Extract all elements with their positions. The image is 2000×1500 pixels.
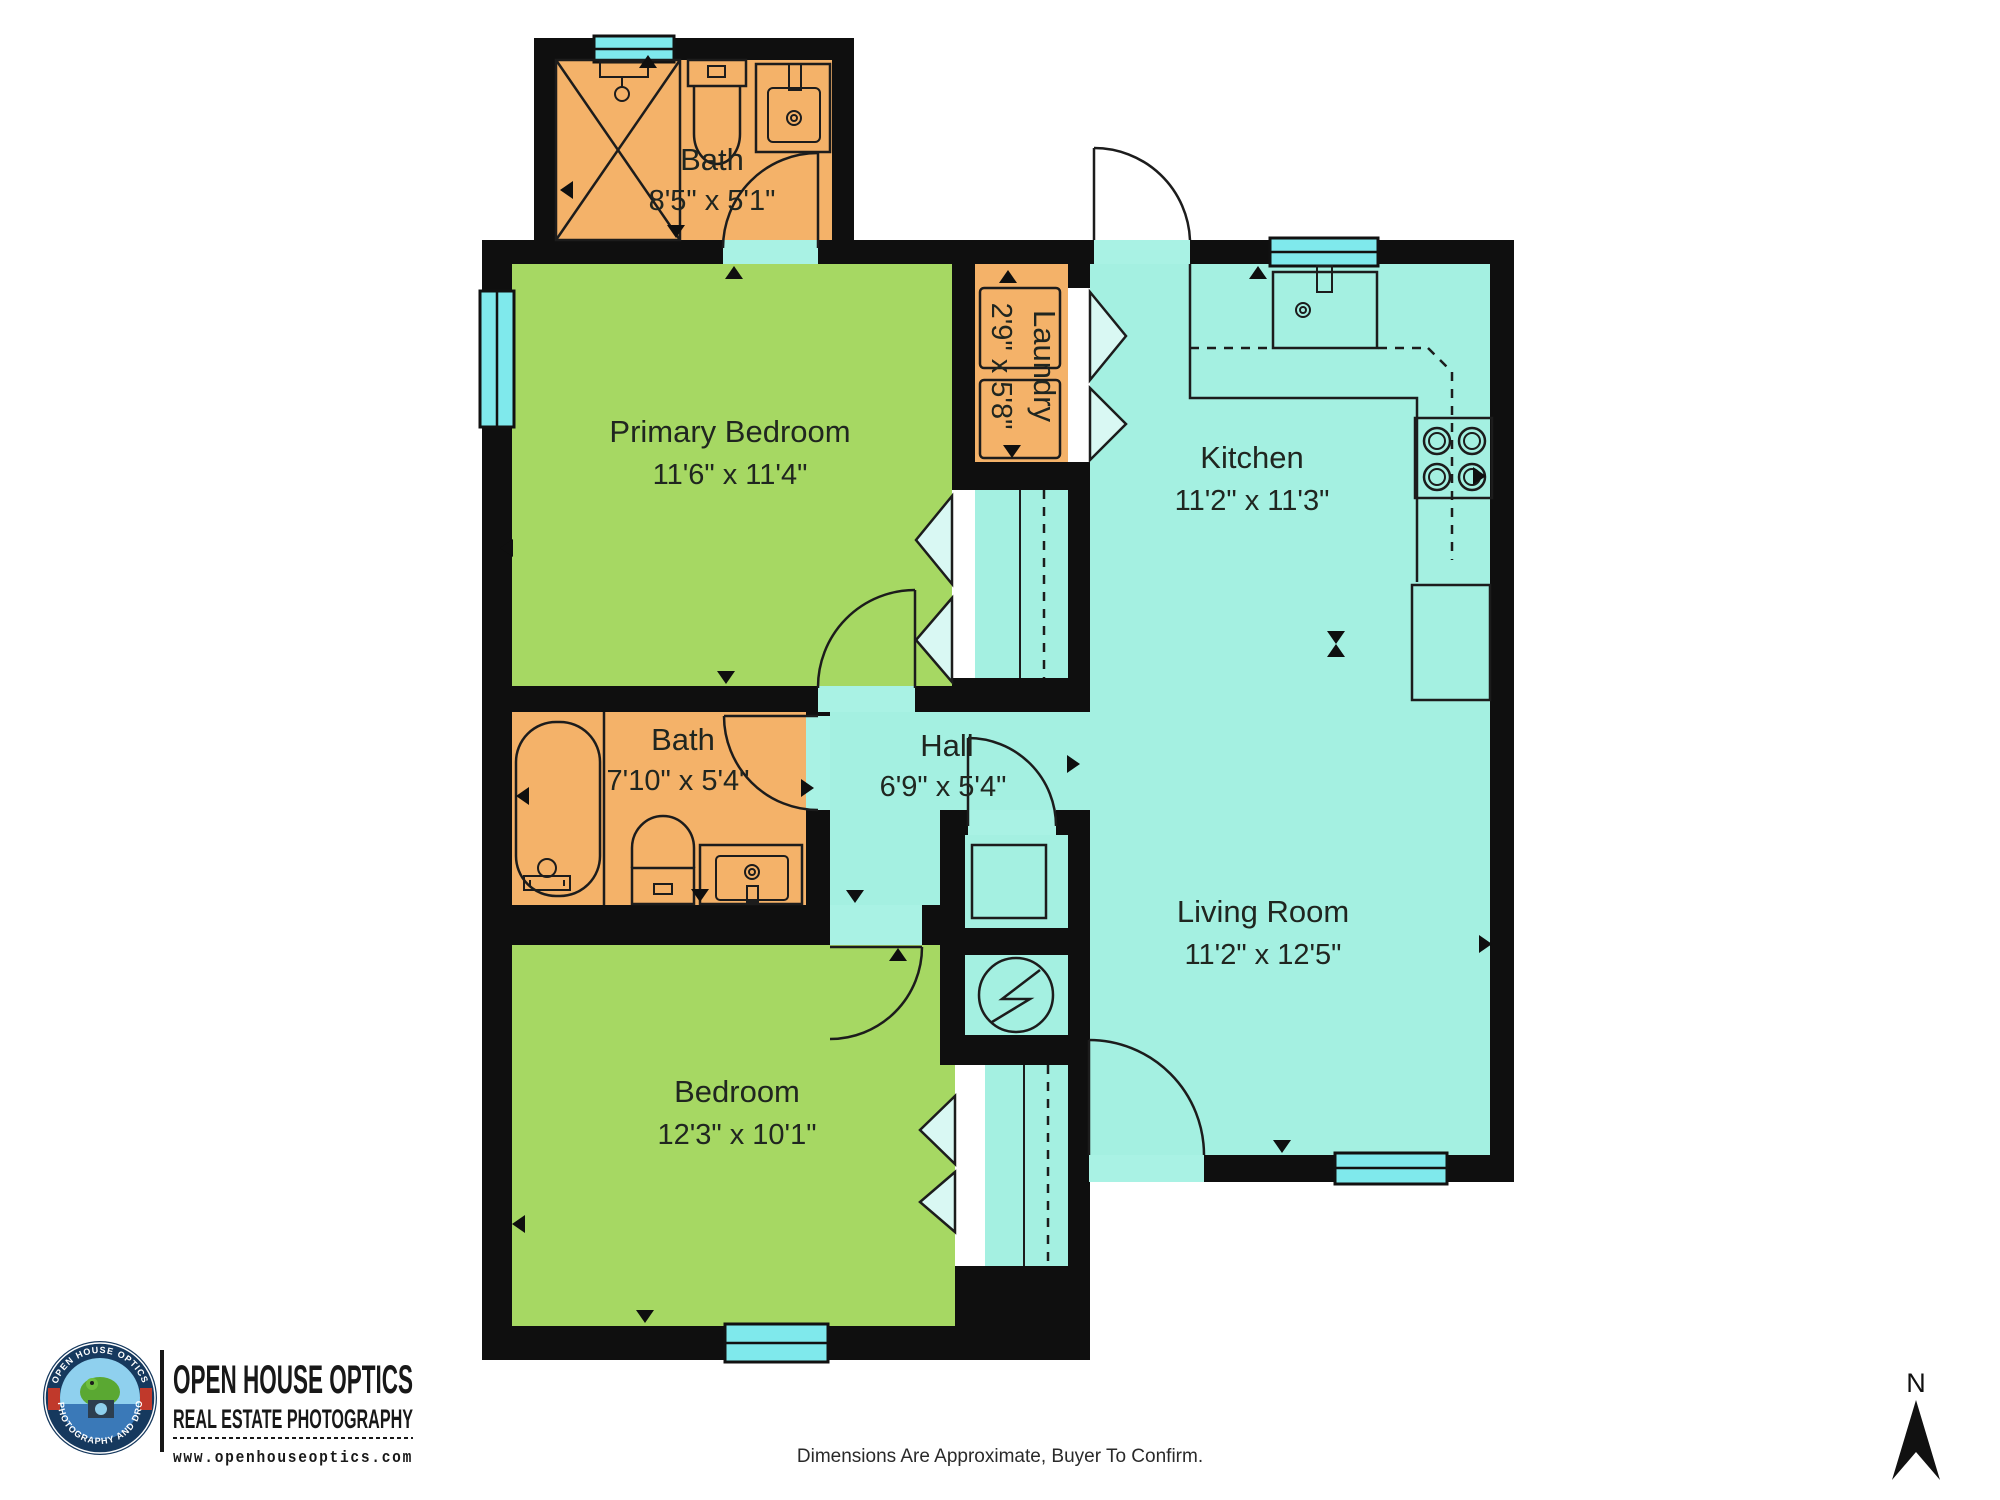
hall-floor-lower bbox=[830, 810, 940, 905]
room-dims-bedroom: 12'3" x 10'1" bbox=[657, 1119, 816, 1151]
primary-bedroom-door-threshold bbox=[818, 686, 915, 712]
disclaimer-text: Dimensions Are Approximate, Buyer To Con… bbox=[797, 1446, 1203, 1467]
room-label-kitchen: Kitchen bbox=[1200, 440, 1303, 475]
company-tagline: REAL ESTATE PHOTOGRAPHY bbox=[173, 1404, 413, 1434]
room-dims-laundry: 2'9" x 5'8" bbox=[985, 303, 1017, 430]
svg-text:3D PHOTOGRAPHY AND DRONE: 3D PHOTOGRAPHY AND DRONE bbox=[0, 0, 144, 1446]
north-arrow-icon: N bbox=[1892, 1368, 1940, 1480]
primary-closet-floor bbox=[975, 490, 1068, 678]
floor-plan-page: Bath 8'5" x 5'1" Primary Bedroom 11'6" x… bbox=[0, 0, 2000, 1500]
bath-upper-door-threshold bbox=[723, 240, 818, 264]
badge-bottom-text: 3D PHOTOGRAPHY AND DRONE bbox=[0, 0, 144, 1446]
room-dims-bath-hall: 7'10" x 5'4" bbox=[607, 765, 750, 797]
entry-door bbox=[1094, 148, 1190, 240]
logo-divider bbox=[160, 1350, 164, 1452]
living-entry-threshold bbox=[1089, 1155, 1204, 1182]
company-logo: OPEN HOUSE OPTICS 3D PHOTOGRAPHY AND DRO… bbox=[0, 0, 413, 1468]
north-arrow bbox=[1892, 1400, 1940, 1480]
north-label: N bbox=[1906, 1368, 1926, 1398]
bedroom-closet-opening bbox=[955, 1065, 985, 1266]
room-dims-living-room: 11'2" x 12'5" bbox=[1185, 939, 1342, 971]
entry-door-threshold bbox=[1094, 240, 1190, 264]
room-dims-bath-upper: 8'5" x 5'1" bbox=[649, 185, 776, 217]
room-label-laundry: Laundry bbox=[1027, 310, 1062, 423]
room-label-bedroom: Bedroom bbox=[674, 1074, 800, 1109]
room-dims-primary-bedroom: 11'6" x 11'4" bbox=[653, 459, 808, 491]
room-label-bath-hall: Bath bbox=[651, 722, 715, 757]
room-dims-kitchen: 11'2" x 11'3" bbox=[1175, 485, 1330, 517]
room-label-living-room: Living Room bbox=[1177, 894, 1349, 929]
logo-badge-icon: OPEN HOUSE OPTICS 3D PHOTOGRAPHY AND DRO… bbox=[0, 0, 157, 1455]
utility-top-floor bbox=[965, 835, 1068, 928]
primary-closet-opening bbox=[952, 490, 975, 678]
laundry-opening bbox=[1068, 288, 1090, 462]
company-name: OPEN HOUSE OPTICS bbox=[173, 1358, 413, 1402]
bedroom-door-threshold bbox=[830, 905, 922, 945]
company-website: www.openhouseoptics.com bbox=[173, 1449, 413, 1468]
bedroom-closet-floor bbox=[985, 1065, 1068, 1266]
room-label-hall: Hall bbox=[920, 728, 973, 763]
bath-hall-door-threshold bbox=[806, 716, 830, 810]
room-dims-hall: 6'9" x 5'4" bbox=[880, 771, 1007, 803]
room-label-bath-upper: Bath bbox=[680, 142, 744, 177]
floor-plan: Bath 8'5" x 5'1" Primary Bedroom 11'6" x… bbox=[0, 0, 2000, 1500]
utility-door-threshold bbox=[968, 810, 1056, 835]
room-label-primary-bedroom: Primary Bedroom bbox=[609, 414, 850, 449]
